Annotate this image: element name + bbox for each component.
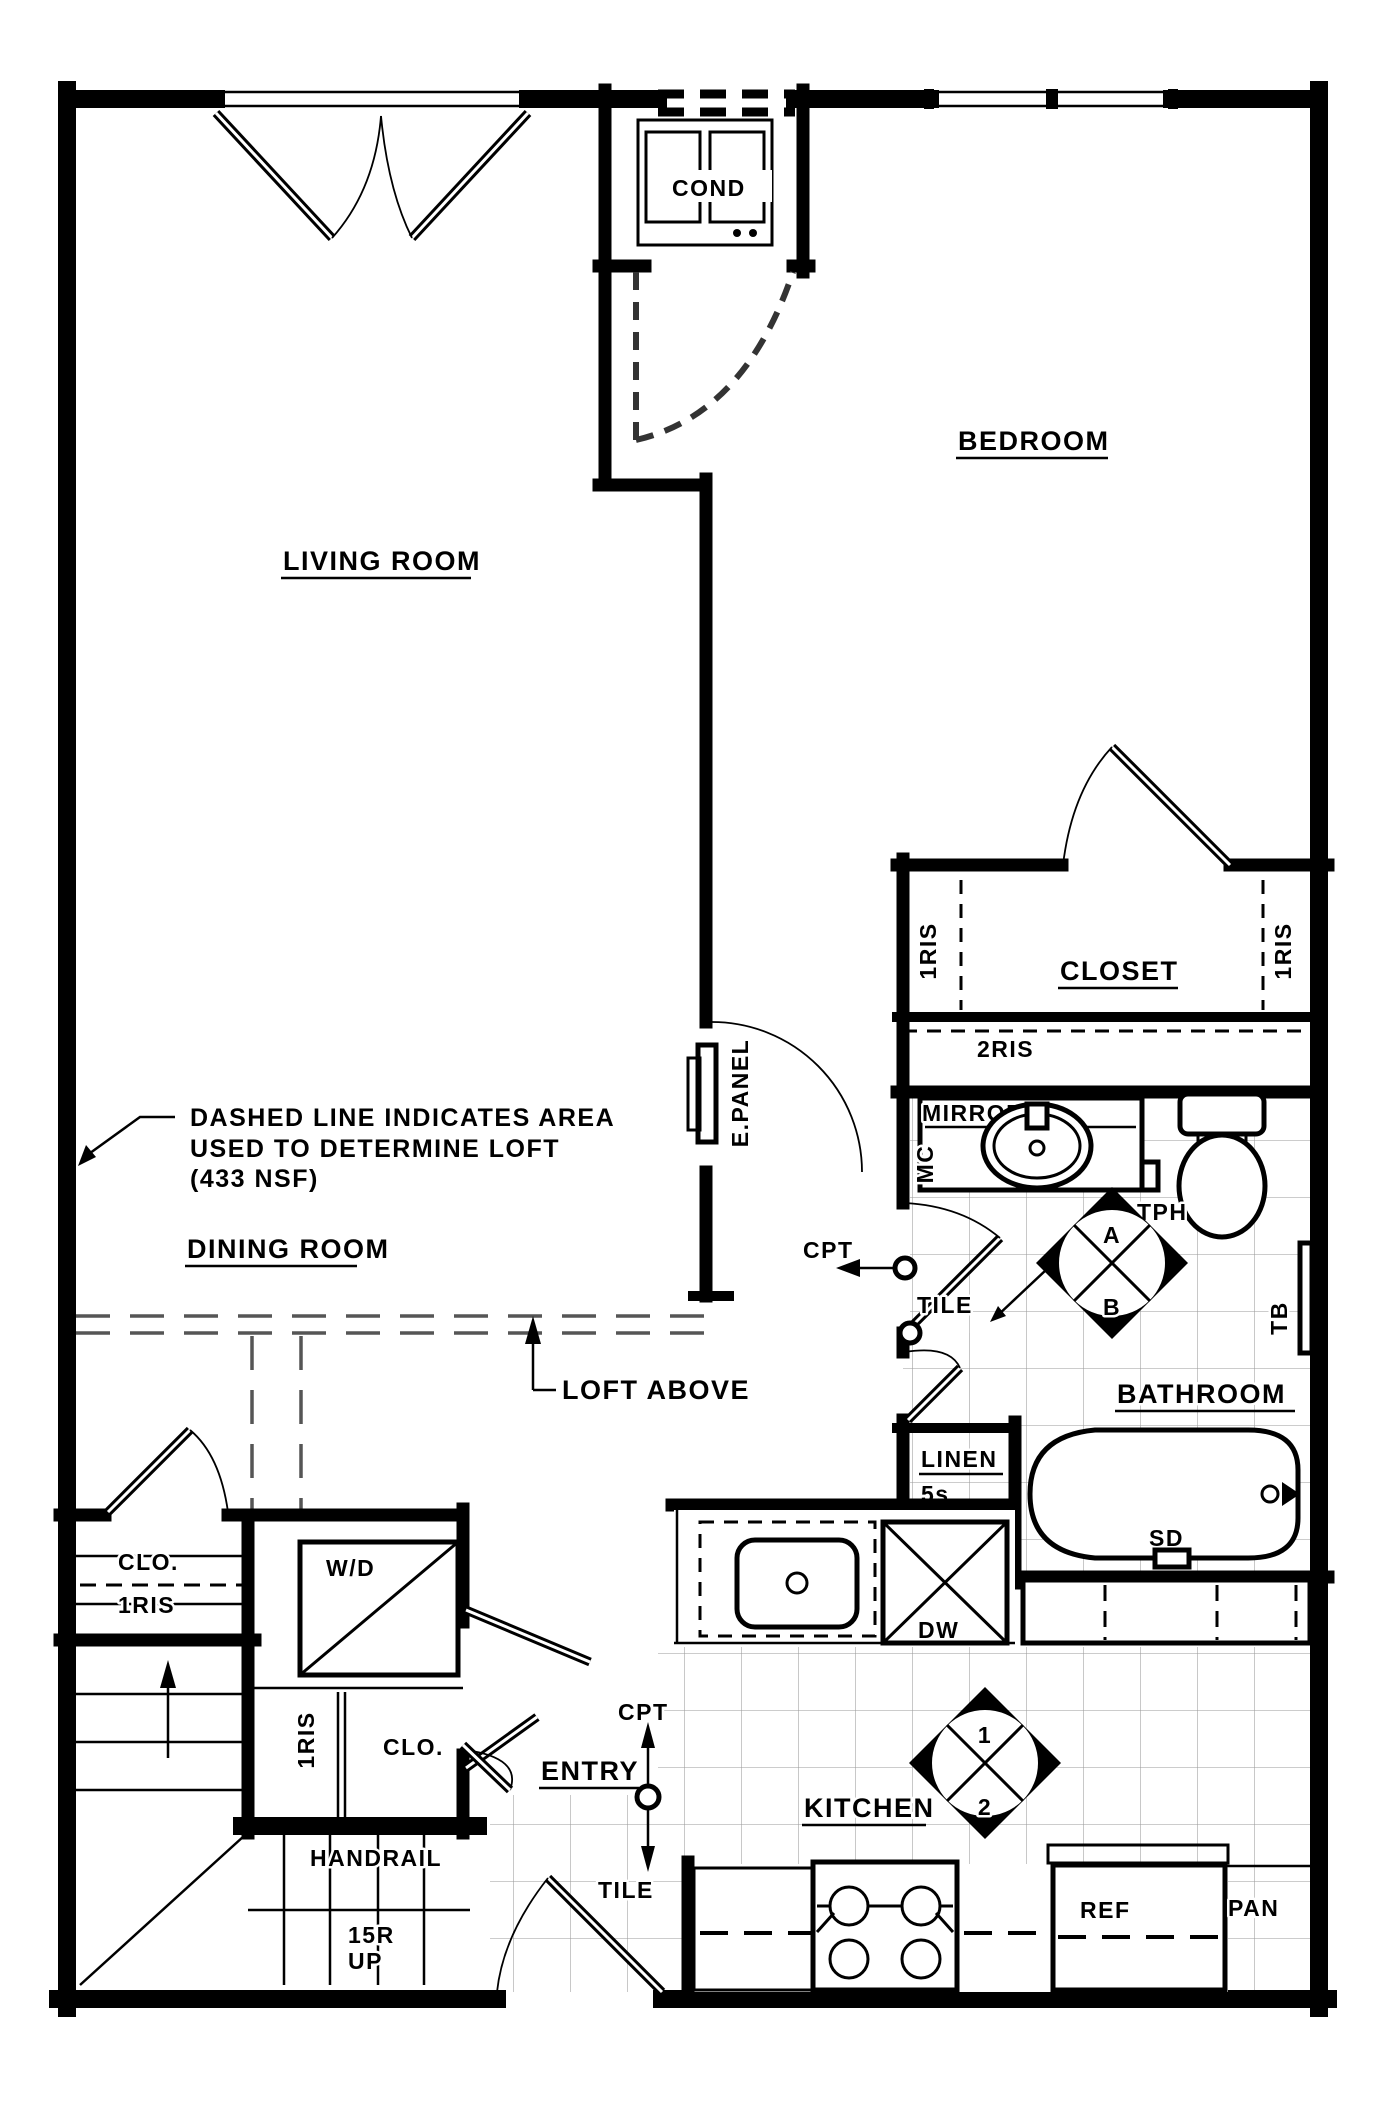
pantry-label: PAN [1228, 1895, 1279, 1921]
bathroom-label: BATHROOM [1117, 1379, 1286, 1409]
french-doors [216, 92, 528, 238]
dining-room-label: DINING ROOM [187, 1234, 390, 1264]
entry-closet-label: CLO. [383, 1734, 444, 1760]
kitchen-sink [737, 1540, 857, 1627]
condenser-closet: COND [599, 90, 809, 485]
hall-west-wall: E.PANEL [599, 479, 862, 1296]
stairs: HANDRAIL 15R UP [69, 1660, 478, 1985]
stair-direction-label: UP [348, 1948, 383, 1974]
finish-key-b: B [1103, 1294, 1121, 1320]
closet-label: CLOSET [1060, 956, 1179, 986]
toilet-bowl [1179, 1135, 1265, 1237]
closet-left-riser-label: 1RIS [915, 922, 941, 979]
entry-closet-riser-label: 1RIS [293, 1711, 319, 1768]
refrigerator [1053, 1865, 1225, 1990]
shower-door-label: SD [1149, 1525, 1184, 1551]
bedroom-window [924, 89, 1178, 109]
loft-note-line1: DASHED LINE INDICATES AREA [190, 1104, 615, 1132]
finish-key-2: 2 [978, 1794, 992, 1820]
kitchen-bottom-band: REF PAN [688, 1845, 1312, 1999]
kitchen-label: KITCHEN [804, 1793, 935, 1823]
finish-key-1: 1 [978, 1722, 992, 1748]
dining-closet-label: CLO. [118, 1549, 179, 1575]
loft-note-line3: (433 NSF) [190, 1165, 319, 1193]
towel-bar [1300, 1243, 1312, 1353]
closet-right-riser-label: 1RIS [1270, 922, 1296, 979]
living-room-label: LIVING ROOM [283, 546, 481, 576]
riser-count-label: 15R [348, 1922, 395, 1948]
toilet-paper-holder [1142, 1162, 1158, 1190]
bedroom-door-dashed [636, 272, 793, 440]
bedroom-closet: CLOSET 1RIS 1RIS 2RIS [897, 747, 1328, 1098]
entry-carpet-label: CPT [618, 1699, 669, 1725]
dining-closet-riser-label: 1RIS [118, 1592, 175, 1618]
closet-base-riser-label: 2RIS [977, 1036, 1034, 1062]
electrical-panel-label: E.PANEL [727, 1039, 753, 1147]
toilet-tank [1180, 1094, 1264, 1134]
finish-key-a: A [1103, 1222, 1121, 1248]
hall-carpet-label: CPT [803, 1237, 854, 1263]
medicine-cabinet-label: MC [912, 1145, 938, 1184]
entry-label: ENTRY [541, 1756, 639, 1786]
loft-boundary-dashed-lines [76, 1316, 712, 1512]
refrigerator-label: REF [1080, 1897, 1131, 1923]
washer-dryer-label: W/D [326, 1555, 375, 1581]
floor-plan: COND E.PANEL CLOSET 1RIS 1RIS 2RIS [0, 0, 1390, 2102]
bedroom-label: BEDROOM [958, 426, 1110, 456]
handrail-label: HANDRAIL [310, 1845, 442, 1871]
dishwasher-label: DW [918, 1617, 959, 1643]
condenser-label: COND [672, 175, 746, 201]
linen-label: LINEN [921, 1446, 998, 1472]
loft-note: DASHED LINE INDICATES AREA USED TO DETER… [78, 1104, 615, 1193]
loft-above-label: LOFT ABOVE [562, 1375, 750, 1405]
east-counter [1023, 1580, 1310, 1643]
loft-note-line2: USED TO DETERMINE LOFT [190, 1135, 560, 1163]
hall-tile-label: TILE [917, 1292, 973, 1318]
entry-tile-label: TILE [598, 1877, 654, 1903]
towel-bar-label: TB [1266, 1301, 1292, 1335]
loft-above-callout: LOFT ABOVE [525, 1316, 750, 1405]
dining-closet: CLO. 1RIS [60, 1430, 255, 1640]
floor-plan-sheet: COND E.PANEL CLOSET 1RIS 1RIS 2RIS [0, 0, 1390, 2102]
laundry-closet-block: W/D 1RIS CLO. [242, 1509, 590, 1833]
